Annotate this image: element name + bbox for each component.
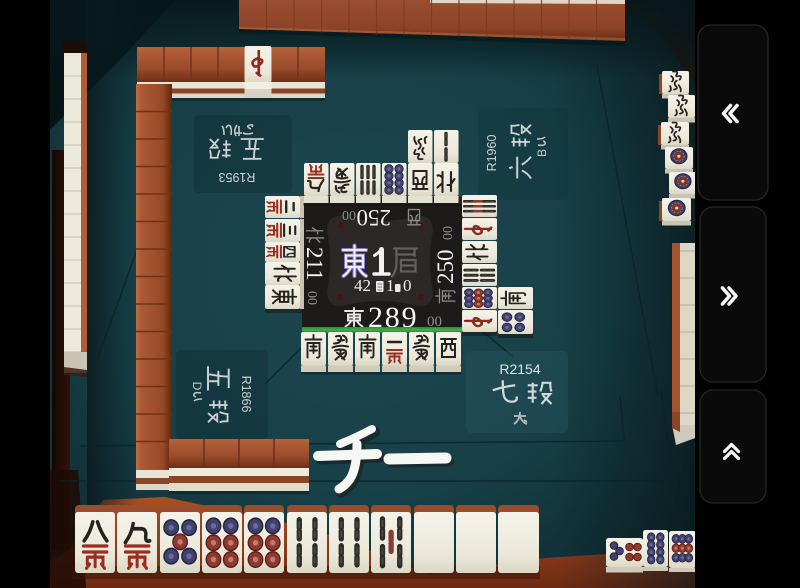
svg-text:00: 00: [342, 207, 356, 222]
svg-text:00: 00: [304, 291, 319, 305]
svg-text:42: 42: [354, 276, 371, 295]
svg-text:250: 250: [433, 250, 458, 285]
svg-text:211: 211: [302, 247, 327, 281]
svg-text:250: 250: [357, 205, 392, 230]
svg-text:00: 00: [441, 226, 456, 240]
svg-text:R1866: R1866: [239, 376, 253, 413]
svg-text:1: 1: [386, 276, 395, 295]
svg-text:R1953: R1953: [219, 170, 256, 184]
svg-text:D: D: [190, 382, 204, 391]
svg-text:B: B: [535, 149, 549, 157]
svg-text:R2154: R2154: [499, 361, 540, 377]
svg-text:0: 0: [403, 276, 412, 295]
svg-text:R1960: R1960: [485, 135, 499, 172]
